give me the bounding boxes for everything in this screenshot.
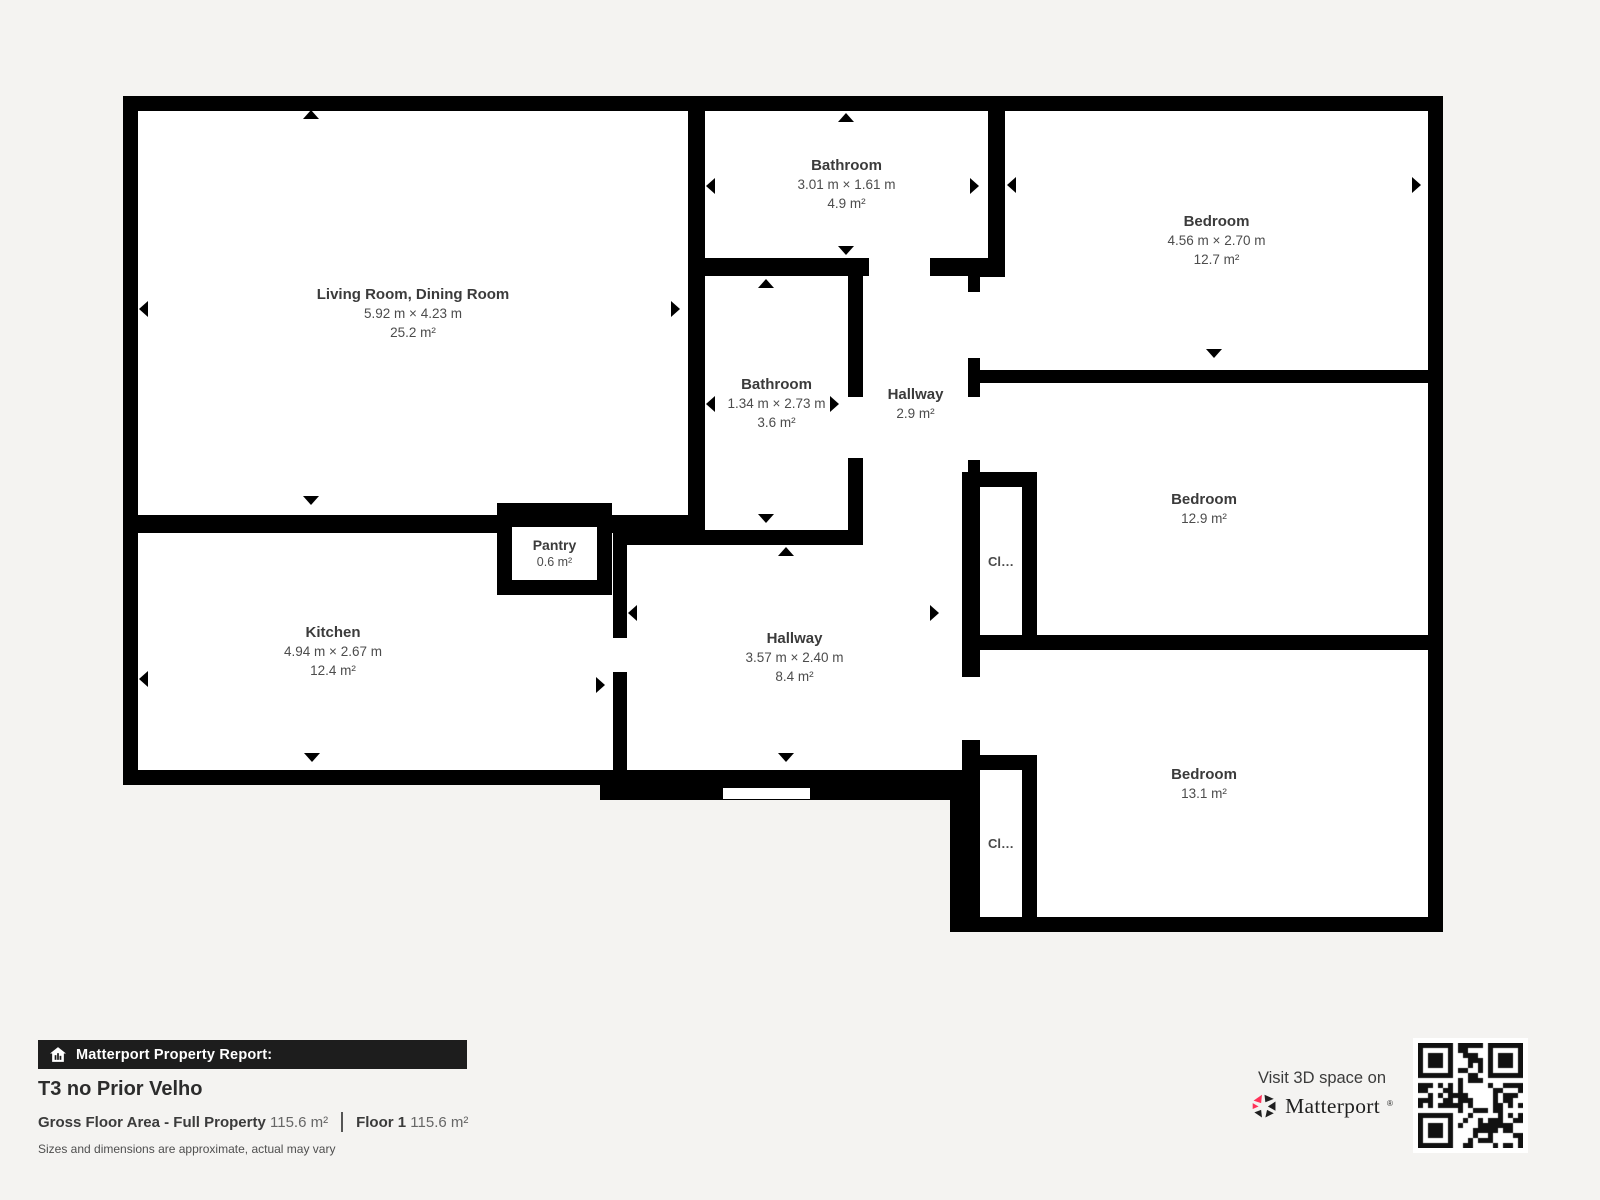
door-opening bbox=[848, 397, 863, 458]
room-label: Pantry bbox=[533, 537, 577, 554]
room-area: 0.6 m² bbox=[537, 554, 572, 571]
room-bedroom-top-right: Bedroom 4.56 m × 2.70 m 12.7 m² bbox=[1005, 111, 1428, 370]
door-opening bbox=[968, 397, 980, 460]
dimension-arrow-right-icon bbox=[596, 677, 605, 693]
room-dimensions: 3.01 m × 1.61 m bbox=[798, 175, 896, 194]
room-dimensions: 5.92 m × 4.23 m bbox=[364, 304, 462, 323]
gross-floor-area-label: Gross Floor Area - Full Property bbox=[38, 1114, 266, 1131]
room-label: Hallway bbox=[767, 629, 823, 648]
room-pantry: Pantry 0.6 m² bbox=[512, 527, 597, 580]
dimension-arrow-up-icon bbox=[304, 520, 320, 529]
floor-plan: Living Room, Dining Room 5.92 m × 4.23 m… bbox=[0, 0, 1600, 1200]
dimension-arrow-left-icon bbox=[706, 178, 715, 194]
room-label: Bedroom bbox=[1184, 212, 1250, 231]
room-hallway-bottom: Hallway 3.57 m × 2.40 m 8.4 m² bbox=[627, 545, 962, 770]
disclaimer-text: Sizes and dimensions are approximate, ac… bbox=[38, 1142, 335, 1156]
door-opening bbox=[613, 638, 627, 672]
room-dimensions: 4.94 m × 2.67 m bbox=[284, 642, 382, 661]
matterport-pinwheel-icon bbox=[1251, 1093, 1278, 1120]
dimension-arrow-left-icon bbox=[706, 396, 715, 412]
door-opening bbox=[723, 788, 810, 799]
room-label: Bathroom bbox=[741, 375, 812, 394]
dimension-arrow-right-icon bbox=[671, 301, 680, 317]
floor-label: Floor 1 bbox=[356, 1114, 406, 1131]
room-living: Living Room, Dining Room 5.92 m × 4.23 m… bbox=[138, 111, 688, 515]
room-bathroom-top: Bathroom 3.01 m × 1.61 m 4.9 m² bbox=[705, 111, 988, 258]
dimension-arrow-down-icon bbox=[304, 753, 320, 762]
room-area: 4.9 m² bbox=[827, 194, 865, 213]
dimension-arrow-left-icon bbox=[1007, 177, 1016, 193]
stats-divider bbox=[341, 1112, 343, 1132]
qr-code-box bbox=[1413, 1038, 1528, 1153]
visit-3d-label: Visit 3D space on bbox=[1222, 1069, 1422, 1088]
floor-value: 115.6 m² bbox=[410, 1114, 468, 1131]
matterport-wordmark: Matterport bbox=[1285, 1094, 1380, 1119]
dimension-arrow-down-icon bbox=[758, 514, 774, 523]
dimension-arrow-left-icon bbox=[139, 671, 148, 687]
floor-area-stats: Gross Floor Area - Full Property 115.6 m… bbox=[38, 1112, 468, 1132]
room-closet-upper: Cl… bbox=[980, 487, 1022, 635]
room-label: Hallway bbox=[888, 385, 944, 404]
door-opening bbox=[962, 677, 980, 740]
room-area: 13.1 m² bbox=[1181, 784, 1227, 803]
matterport-logo: Matterport ® bbox=[1222, 1093, 1422, 1120]
room-area: 12.7 m² bbox=[1194, 250, 1240, 269]
room-dimensions: 4.56 m × 2.70 m bbox=[1168, 231, 1266, 250]
dimension-arrow-up-icon bbox=[838, 113, 854, 122]
dimension-arrow-right-icon bbox=[970, 178, 979, 194]
room-bathroom-mid: Bathroom 1.34 m × 2.73 m 3.6 m² bbox=[705, 276, 848, 530]
dimension-arrow-right-icon bbox=[930, 605, 939, 621]
dimension-arrow-right-icon bbox=[830, 396, 839, 412]
room-dimensions: 3.57 m × 2.40 m bbox=[746, 648, 844, 667]
room-bedroom-right: Bedroom 12.9 m² bbox=[980, 383, 1428, 635]
room-label: Bathroom bbox=[811, 156, 882, 175]
room-area: 25.2 m² bbox=[390, 323, 436, 342]
dimension-arrow-down-icon bbox=[778, 753, 794, 762]
room-area: 8.4 m² bbox=[775, 667, 813, 686]
room-area: 12.4 m² bbox=[310, 661, 356, 680]
bedroom-alcove bbox=[980, 277, 1005, 370]
dimension-arrow-down-icon bbox=[303, 496, 319, 505]
room-label: Kitchen bbox=[305, 623, 360, 642]
property-title: T3 no Prior Velho bbox=[38, 1078, 202, 1101]
room-dimensions: 1.34 m × 2.73 m bbox=[728, 394, 826, 413]
room-label: Bedroom bbox=[1171, 490, 1237, 509]
gross-floor-area-value: 115.6 m² bbox=[270, 1114, 328, 1131]
room-label: Cl… bbox=[988, 836, 1014, 851]
report-banner: Matterport Property Report: bbox=[38, 1040, 467, 1069]
room-hallway-mid: Hallway 2.9 m² bbox=[863, 276, 968, 545]
room-label: Living Room, Dining Room bbox=[317, 285, 509, 304]
room-label: Cl… bbox=[988, 554, 1014, 569]
room-label: Bedroom bbox=[1171, 765, 1237, 784]
dimension-arrow-left-icon bbox=[628, 605, 637, 621]
room-closet-lower: Cl… bbox=[980, 770, 1022, 917]
room-area: 12.9 m² bbox=[1181, 509, 1227, 528]
report-banner-label: Matterport Property Report: bbox=[76, 1047, 272, 1063]
dimension-arrow-up-icon bbox=[778, 547, 794, 556]
door-opening bbox=[968, 292, 980, 358]
dimension-arrow-up-icon bbox=[303, 110, 319, 119]
house-chart-icon bbox=[50, 1047, 66, 1062]
dimension-arrow-up-icon bbox=[758, 279, 774, 288]
registered-mark: ® bbox=[1387, 1099, 1393, 1108]
dimension-arrow-left-icon bbox=[139, 301, 148, 317]
dimension-arrow-down-icon bbox=[838, 246, 854, 255]
qr-code bbox=[1418, 1043, 1523, 1148]
room-bedroom-bottom-right: Bedroom 13.1 m² bbox=[980, 650, 1428, 917]
door-opening bbox=[869, 258, 930, 277]
room-area: 3.6 m² bbox=[757, 413, 795, 432]
dimension-arrow-right-icon bbox=[1412, 177, 1421, 193]
room-area: 2.9 m² bbox=[896, 404, 934, 423]
dimension-arrow-down-icon bbox=[1206, 349, 1222, 358]
